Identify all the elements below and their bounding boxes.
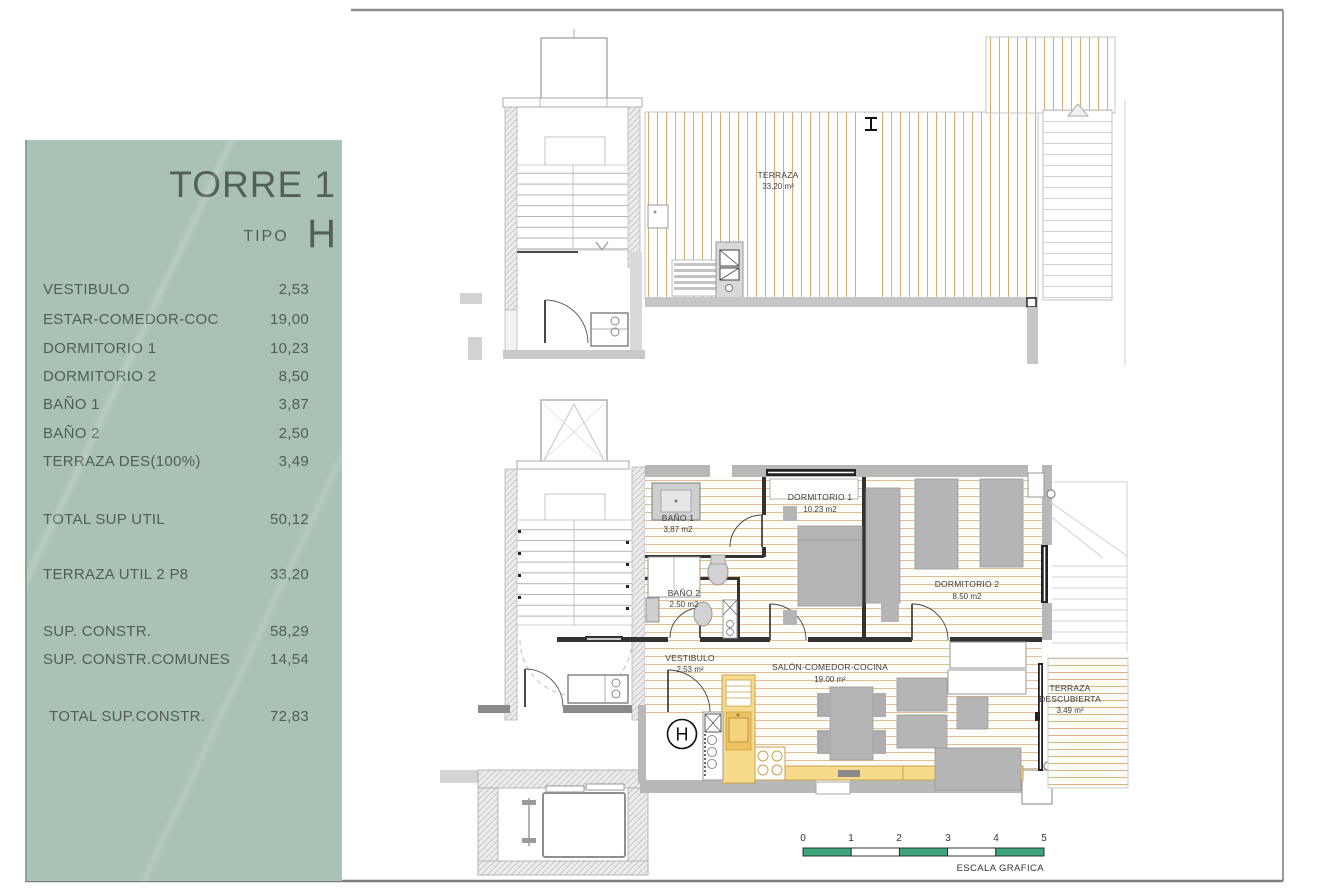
counter: [591, 313, 628, 346]
area-row: DORMITORIO 28,50: [43, 368, 309, 388]
salon-label: SALÓN-COMEDOR-COCINA: [772, 662, 888, 672]
skylight-shaft: [541, 400, 607, 462]
coffee-table: [957, 697, 988, 729]
area-row: VESTIBULO2,53: [43, 281, 309, 301]
bano2-sink: [646, 598, 659, 622]
unit-marker: H: [668, 720, 697, 749]
area-row: TERRAZA DES(100%)3,49: [43, 453, 309, 473]
door-swing: [525, 669, 563, 707]
dining-table: [830, 687, 873, 760]
bano2-area: 2.50 m2: [670, 600, 699, 609]
stairwell-upper: [517, 137, 628, 252]
dorm1-area: 10.23 m2: [803, 505, 837, 514]
scale-tick-0: 0: [800, 833, 806, 844]
dorm2-label: DORMITORIO 2: [935, 579, 1000, 589]
terraza-label: TERRAZA: [757, 170, 798, 180]
sup-constr-row: SUP. CONSTR.58,29: [43, 623, 309, 643]
scale-tick-2: 2: [896, 833, 902, 844]
sup-constr-comunes-row: SUP. CONSTR.COMUNES14,54: [43, 651, 309, 671]
armchair: [897, 678, 947, 711]
scale-tick-4: 4: [993, 833, 999, 844]
scale-tick-3: 3: [945, 833, 951, 844]
wardrobe: [980, 479, 1023, 567]
terraza-desc-label-2: DESCUBIERTA: [1039, 694, 1101, 704]
louver-unit: [672, 260, 718, 296]
counter: [568, 675, 628, 703]
upper-plan: TERRAZA 33,20 m²: [460, 29, 1125, 365]
stair-wall-right: [628, 107, 640, 267]
panel-subtitle: TIPO H: [243, 212, 336, 257]
terraza-descubierta: [1035, 658, 1128, 788]
vestibulo-area: 2.53 m²: [676, 665, 703, 674]
tipo-value: H: [307, 212, 336, 256]
bano2-label: BAÑO 2: [668, 588, 700, 598]
vent-strip: [723, 600, 737, 638]
dorm2-area: 8.50 m2: [953, 592, 982, 601]
roof-shaft: [541, 38, 607, 100]
summary-panel: TORRE 1 TIPO H VESTIBULO2,53 ESTAR-COMED…: [25, 140, 342, 881]
exterior-stair-lower: [1050, 482, 1127, 652]
entry-vent-strip: [703, 712, 723, 780]
sofa: [935, 748, 1021, 790]
roof-access-room: [460, 293, 645, 360]
area-row: BAÑO 22,50: [43, 425, 309, 445]
lower-plan: H BAÑO 1 3,87 m2 DORMITORIO 1 10.23 m2 B…: [440, 400, 1128, 875]
shaft-unit: [716, 242, 743, 300]
wall: [630, 252, 642, 358]
tipo-label: TIPO: [243, 228, 288, 245]
dorm1-label: DORMITORIO 1: [788, 492, 853, 502]
scale-caption: ESCALA GRAFICA: [957, 863, 1045, 874]
scale-bar: 0 1 2 3 4 5 ESCALA GRAFICA: [800, 833, 1047, 874]
stairwell-lower: [478, 494, 632, 713]
area-row: ESTAR-COMEDOR-COC19,00: [43, 311, 309, 331]
total-util-row: TOTAL SUP UTIL50,12: [43, 511, 309, 531]
area-row: DORMITORIO 110,23: [43, 340, 309, 360]
panel-title: TORRE 1: [169, 164, 336, 206]
terraza-util-row: TERRAZA UTIL 2 P833,20: [43, 566, 309, 586]
total-constr-row: TOTAL SUP.CONSTR.72,83: [49, 708, 309, 728]
stair-wall-right: [632, 467, 645, 720]
door-swing: [545, 300, 588, 343]
terraza-desc-label-1: TERRAZA: [1049, 683, 1090, 693]
elevator-car: [543, 793, 625, 857]
unit-letter: H: [676, 725, 689, 745]
plan-sheet: TERRAZA 33,20 m²: [0, 0, 1320, 895]
roof-exterior-stair: [1043, 100, 1125, 365]
terraza-desc-area: 3.49 m²: [1056, 706, 1083, 715]
vestibulo-label: VESTIBULO: [665, 653, 715, 663]
edge-marker: [1027, 298, 1036, 307]
scale-tick-1: 1: [848, 833, 854, 844]
bed: [798, 526, 862, 606]
stair-wall-left: [505, 107, 517, 310]
bano1-area: 3,87 m2: [664, 525, 693, 534]
wardrobe: [915, 479, 958, 569]
scale-tick-5: 5: [1041, 833, 1047, 844]
vent-box: [648, 205, 668, 228]
salon-area: 19.00 m²: [814, 675, 846, 684]
terraza-area: 33,20 m²: [762, 182, 794, 191]
armchair: [897, 715, 947, 748]
area-row: BAÑO 13,87: [43, 396, 309, 416]
bano1-label: BAÑO 1: [662, 513, 694, 523]
stair-wall-left: [505, 469, 517, 720]
